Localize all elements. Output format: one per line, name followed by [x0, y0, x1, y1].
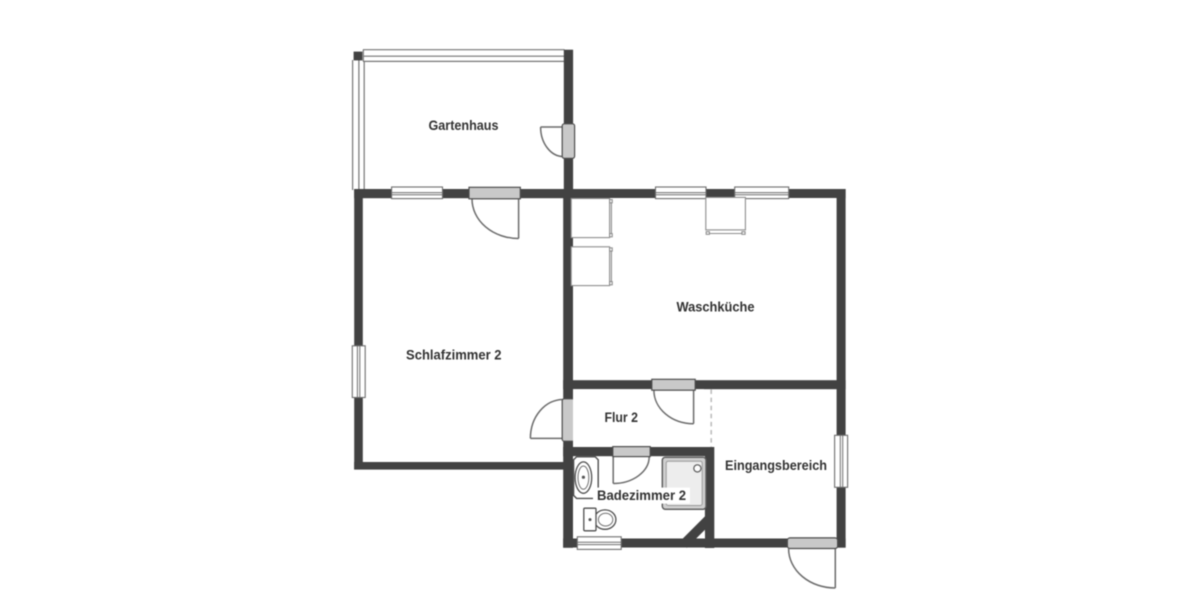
svg-text:Flur 2: Flur 2 — [604, 409, 638, 425]
svg-text:Eingangsbereich: Eingangsbereich — [725, 457, 827, 473]
svg-text:Schlafzimmer 2: Schlafzimmer 2 — [406, 347, 502, 363]
svg-text:Waschküche: Waschküche — [677, 298, 755, 314]
svg-text:Gartenhaus: Gartenhaus — [429, 117, 499, 133]
svg-text:Badezimmer 2: Badezimmer 2 — [597, 487, 686, 503]
